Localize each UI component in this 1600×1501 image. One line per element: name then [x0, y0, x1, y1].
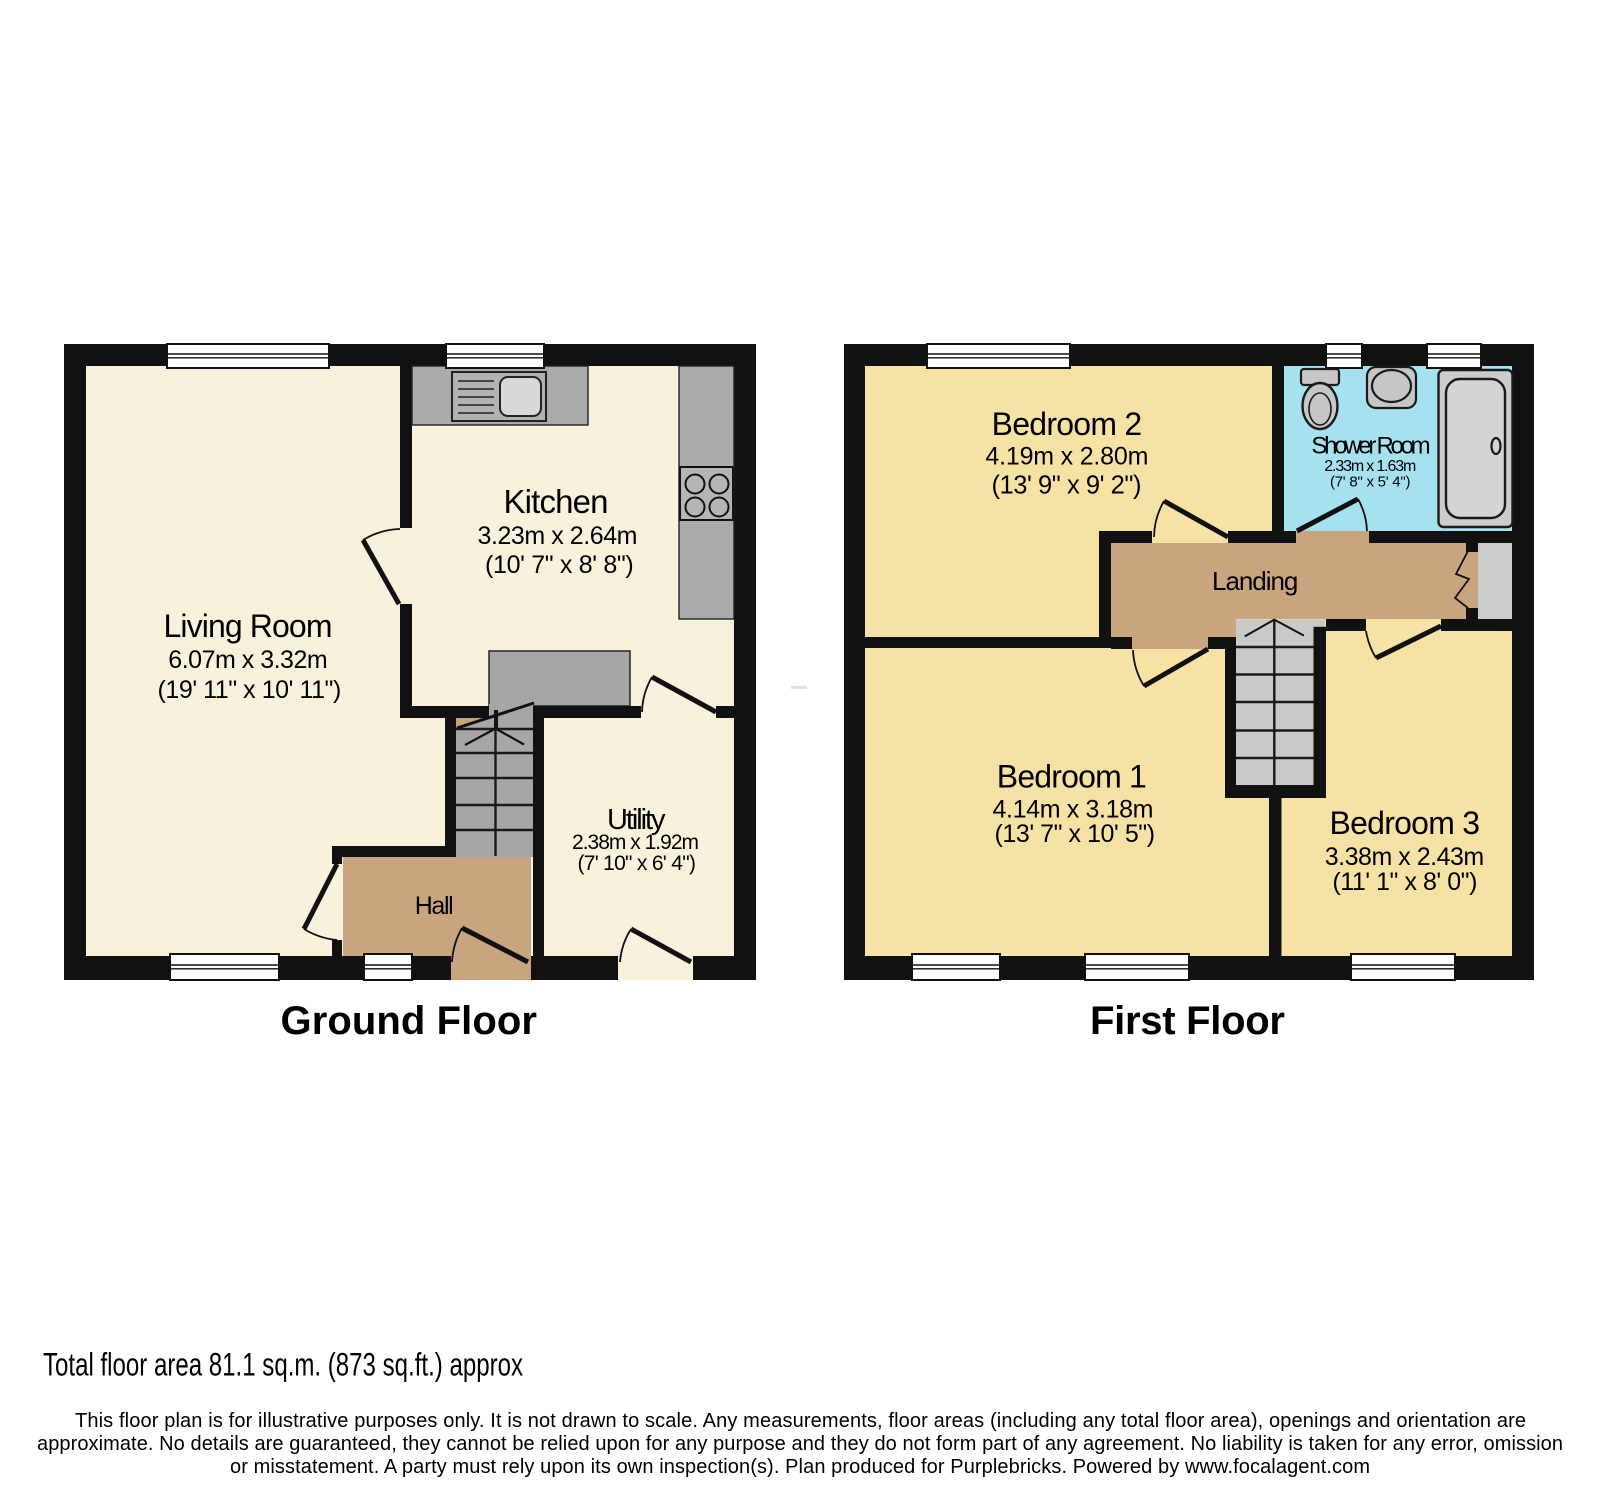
svg-text:Shower Room: Shower Room	[1311, 433, 1430, 460]
svg-text:Hall: Hall	[415, 892, 454, 920]
svg-text:Kitchen: Kitchen	[504, 483, 609, 520]
svg-text:Total floor area 81.1 sq.m. (8: Total floor area 81.1 sq.m. (873 sq.ft.)…	[43, 1347, 523, 1383]
svg-text:6.07m x 3.32m: 6.07m x 3.32m	[168, 646, 327, 674]
svg-text:(7' 8" x 5' 4"): (7' 8" x 5' 4")	[1330, 474, 1411, 491]
svg-text:Landing: Landing	[1212, 566, 1298, 596]
svg-text:(13' 7" x 10' 5"): (13' 7" x 10' 5")	[995, 820, 1156, 848]
svg-text:(11' 1" x 8' 0"): (11' 1" x 8' 0")	[1332, 868, 1477, 896]
svg-text:Living Room: Living Room	[164, 608, 333, 644]
svg-text:Bedroom 3: Bedroom 3	[1330, 805, 1481, 841]
svg-text:3.38m x 2.43m: 3.38m x 2.43m	[1325, 843, 1485, 871]
svg-text:2.33m x 1.63m: 2.33m x 1.63m	[1324, 458, 1416, 475]
svg-text:Bedroom 1: Bedroom 1	[997, 759, 1147, 795]
svg-text:(7' 10" x 6' 4"): (7' 10" x 6' 4")	[577, 852, 696, 875]
svg-text:First Floor: First Floor	[1090, 999, 1285, 1043]
svg-text:or misstatement. A party must: or misstatement. A party must rely upon …	[230, 1456, 1370, 1478]
svg-text:4.19m x 2.80m: 4.19m x 2.80m	[985, 443, 1148, 471]
svg-text:Bedroom 2: Bedroom 2	[992, 406, 1143, 442]
svg-text:(19' 11" x 10' 11"): (19' 11" x 10' 11")	[158, 676, 342, 704]
svg-text:3.23m x 2.64m: 3.23m x 2.64m	[478, 522, 638, 550]
svg-text:approximate. No details are gu: approximate. No details are guaranteed, …	[37, 1433, 1563, 1455]
svg-text:This floor plan is for illustr: This floor plan is for illustrative purp…	[75, 1410, 1526, 1432]
svg-text:Ground Floor: Ground Floor	[281, 999, 538, 1043]
svg-text:(13' 9" x 9' 2"): (13' 9" x 9' 2")	[992, 472, 1142, 500]
svg-text:(10' 7" x 8' 8"): (10' 7" x 8' 8")	[485, 551, 634, 579]
svg-text:2.38m x 1.92m: 2.38m x 1.92m	[572, 831, 699, 854]
